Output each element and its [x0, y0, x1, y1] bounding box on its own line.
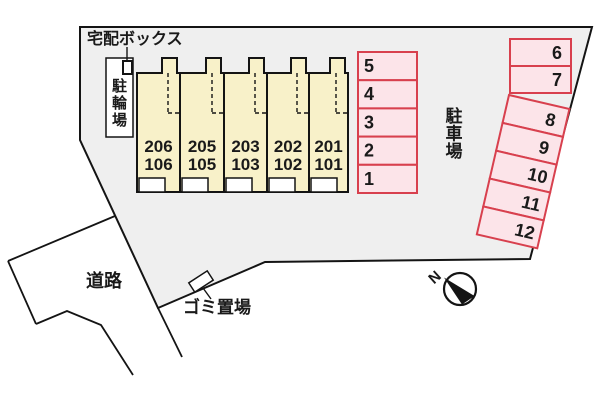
unit-number-lower: 106: [144, 155, 172, 174]
delivery-box-label: 宅配ボックス: [87, 29, 183, 48]
unit-number-lower: 101: [314, 155, 342, 174]
stall-number: 3: [364, 112, 374, 132]
unit-number-lower: 105: [188, 155, 216, 174]
road-edge-upper: [8, 216, 115, 261]
parking-lot-label: 駐車場: [446, 106, 463, 161]
stall-number: 1: [364, 169, 374, 189]
unit-number-upper: 202: [274, 137, 302, 156]
unit-number-lower: 103: [231, 155, 259, 174]
parking-top-right: 6 7: [510, 39, 571, 93]
parking-left-column: 5 4 3 2 1: [358, 52, 417, 193]
entrance-porch: [311, 178, 337, 192]
unit-number-lower: 102: [274, 155, 302, 174]
unit-number-upper: 205: [188, 137, 216, 156]
entrance-porch: [226, 178, 252, 192]
road-label: 道路: [86, 270, 123, 291]
unit-number-upper: 201: [314, 137, 342, 156]
site-plan: 道路 206 106 205 105 203: [0, 0, 600, 400]
road-edge-lower: [36, 311, 133, 375]
site-plan-drawing: 道路 206 106 205 105 203: [0, 0, 600, 400]
stall-number: 2: [364, 141, 374, 161]
delivery-box-symbol: [123, 61, 132, 74]
site-boundary-extension: [158, 308, 182, 357]
road: 道路: [8, 216, 133, 375]
garbage-area-label: ゴミ置場: [183, 297, 251, 317]
road-edge-left: [8, 261, 36, 324]
unit-number-upper: 203: [231, 137, 259, 156]
north-label: N: [425, 268, 444, 288]
north-arrow: N: [425, 268, 476, 305]
stall-number: 7: [552, 70, 562, 90]
entrance-porch: [139, 178, 165, 192]
unit-number-upper: 206: [144, 137, 172, 156]
entrance-porch: [269, 178, 295, 192]
bicycle-parking-label: 駐輪場: [112, 77, 128, 129]
entrance-porch: [182, 178, 208, 192]
stall-number: 5: [364, 56, 374, 76]
stall-number: 6: [552, 43, 562, 63]
stall-number: 4: [364, 84, 374, 104]
apartment-building: 206 106 205 105 203 103 202 102: [137, 58, 348, 192]
